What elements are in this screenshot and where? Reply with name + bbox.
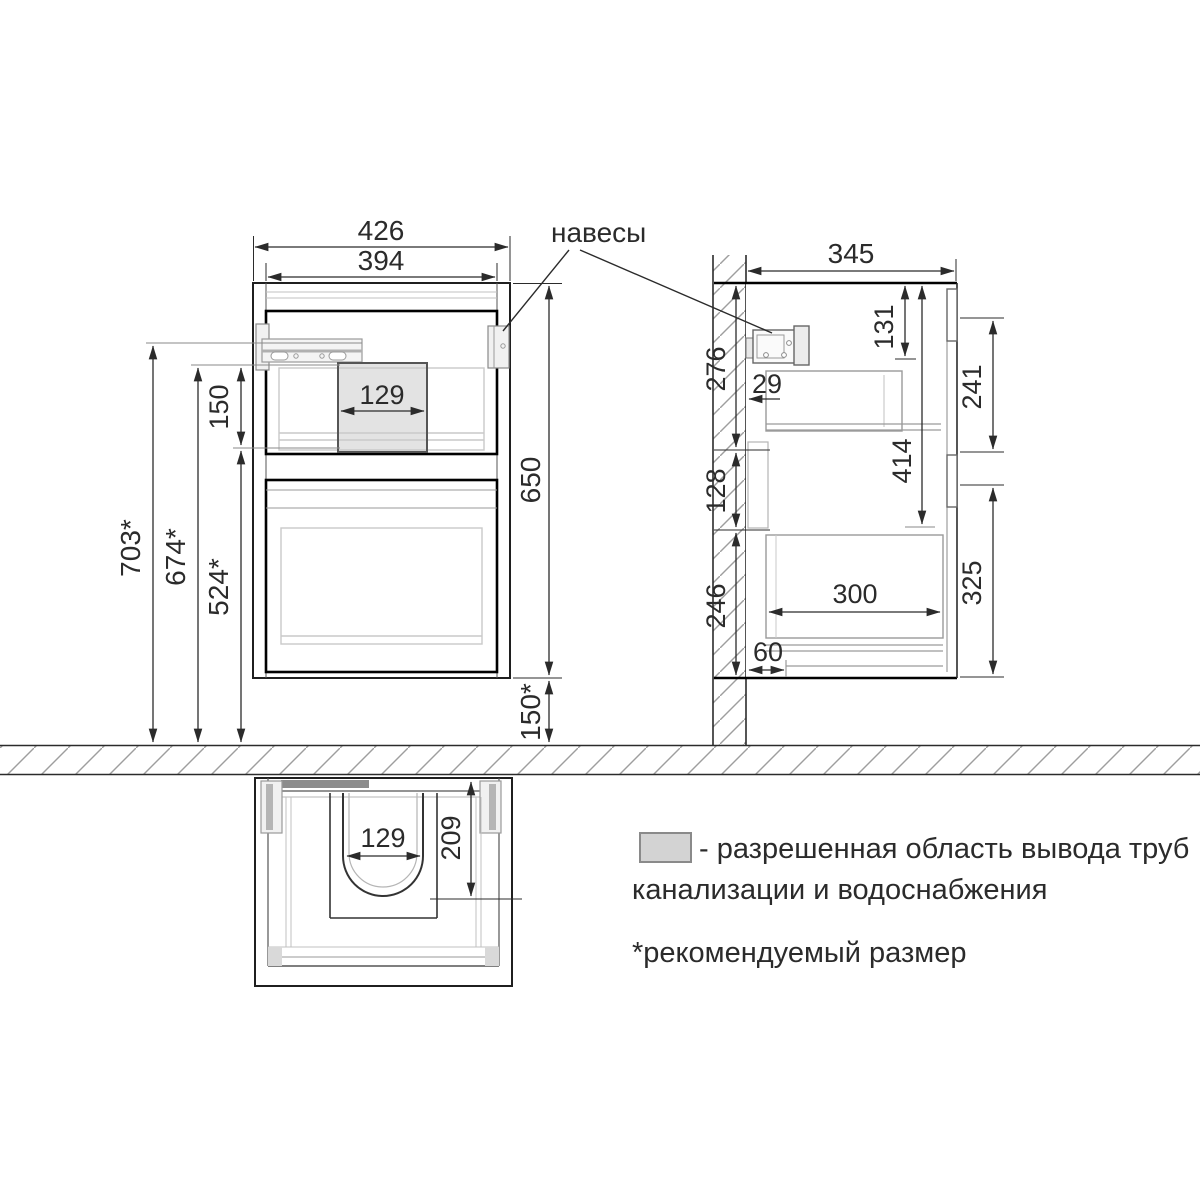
dim-label-524: 524* xyxy=(203,558,234,616)
wall-pipe-niche xyxy=(748,442,768,528)
dim-label-325: 325 xyxy=(957,560,987,605)
dim-front-bottom-panel: 325 xyxy=(957,485,1004,677)
dim-label-703: 703* xyxy=(115,519,146,577)
dim-label-129-plan: 129 xyxy=(360,823,405,853)
hanger-bracket-front xyxy=(488,326,509,368)
dim-label-345: 345 xyxy=(828,238,875,269)
legend-line2: канализации и водоснабжения xyxy=(632,874,1047,906)
plan-pipe-zone-bar xyxy=(281,780,369,788)
dim-label-276: 276 xyxy=(701,346,731,391)
dim-label-131: 131 xyxy=(869,304,899,349)
legend-footnote: *рекомендуемый размер xyxy=(632,937,966,969)
dim-back-clearance: 29 xyxy=(749,369,782,399)
dim-label-674: 674* xyxy=(160,528,191,586)
vanity-installation-drawing: 426 394 129 650 150* 703* 674* 150 52 xyxy=(0,0,1200,1200)
dim-label-650: 650 xyxy=(515,457,546,504)
dim-label-29: 29 xyxy=(752,369,782,399)
dim-label-129-front: 129 xyxy=(359,380,404,410)
dim-label-414: 414 xyxy=(887,438,917,483)
front-view xyxy=(253,283,510,678)
dim-label-209: 209 xyxy=(436,815,466,860)
hangers-leader-front xyxy=(503,250,569,331)
plan-foot-right xyxy=(485,947,499,966)
dim-label-60: 60 xyxy=(753,637,783,667)
hanger-bracket-side xyxy=(746,326,809,365)
plan-cabinet-outline xyxy=(255,778,512,986)
dim-label-300: 300 xyxy=(832,579,877,609)
plan-hanger-bracket-left xyxy=(261,781,282,833)
dim-label-241: 241 xyxy=(957,364,987,409)
top-drawer-handle-profile xyxy=(947,289,957,341)
side-view xyxy=(714,283,957,678)
dim-label-426: 426 xyxy=(358,215,405,246)
dim-depth: 345 xyxy=(748,238,956,281)
legend: - разрешенная область вывода труб канали… xyxy=(632,833,1189,969)
dim-label-394: 394 xyxy=(358,245,405,276)
dim-label-150-star: 150* xyxy=(515,683,546,741)
floor-hatch xyxy=(0,746,1200,774)
plan-foot-left xyxy=(268,947,282,966)
legend-line1: - разрешенная область вывода труб xyxy=(699,833,1189,865)
hangers-label: навесы xyxy=(551,217,646,248)
floor-section xyxy=(0,746,1200,775)
side-top-drawer xyxy=(766,371,902,431)
dim-front-top-panel: 241 xyxy=(957,318,1004,452)
technical-drawing-page: 426 394 129 650 150* 703* 674* 150 52 xyxy=(0,0,1200,1200)
dim-pipe-zone-height: 150 xyxy=(204,368,241,445)
dim-cabinet-height: 650 xyxy=(513,284,562,679)
legend-swatch xyxy=(640,833,691,862)
plan-hanger-bracket-right xyxy=(480,781,501,833)
dim-label-246: 246 xyxy=(701,583,731,628)
bottom-drawer-handle-profile xyxy=(947,455,957,507)
dim-bottom-back-recess: 60 xyxy=(749,637,784,670)
dim-floor-clearance: 150* xyxy=(515,681,549,742)
dim-label-150-zone: 150 xyxy=(204,384,234,429)
plan-view xyxy=(255,778,512,986)
dim-front-opening-width: 394 xyxy=(266,245,497,281)
dim-label-128: 128 xyxy=(701,468,731,513)
